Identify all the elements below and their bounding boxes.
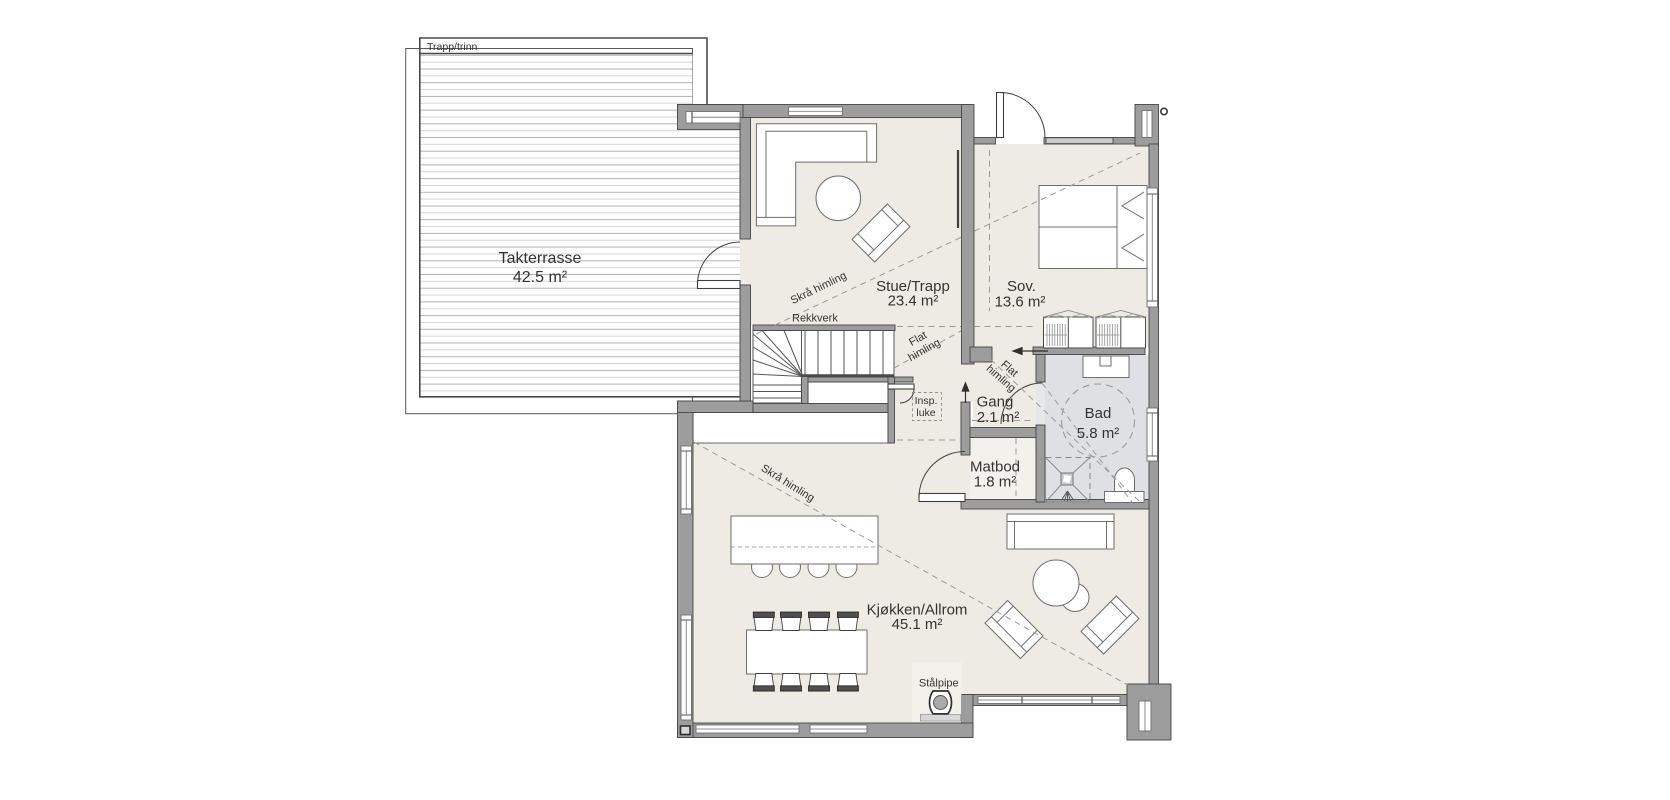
svg-text:Takterrasse: Takterrasse (499, 250, 582, 267)
svg-text:13.6 m²: 13.6 m² (995, 294, 1046, 311)
svg-text:23.4 m²: 23.4 m² (888, 293, 939, 310)
svg-text:Sov.: Sov. (1007, 278, 1036, 295)
svg-text:5.8 m²: 5.8 m² (1077, 425, 1120, 442)
svg-text:Trapp/trinn: Trapp/trinn (427, 41, 478, 53)
svg-text:Bad: Bad (1085, 405, 1112, 422)
svg-text:Insp.: Insp. (915, 395, 938, 407)
svg-text:42.5 m²: 42.5 m² (513, 269, 568, 286)
svg-text:2.1 m²: 2.1 m² (977, 409, 1020, 426)
svg-text:1.8 m²: 1.8 m² (974, 474, 1017, 491)
svg-text:Stålpipe: Stålpipe (919, 678, 959, 690)
svg-text:luke: luke (916, 407, 935, 419)
svg-text:Gang: Gang (977, 394, 1014, 411)
svg-text:Rekkverk: Rekkverk (792, 313, 838, 325)
svg-text:45.1 m²: 45.1 m² (892, 616, 943, 633)
